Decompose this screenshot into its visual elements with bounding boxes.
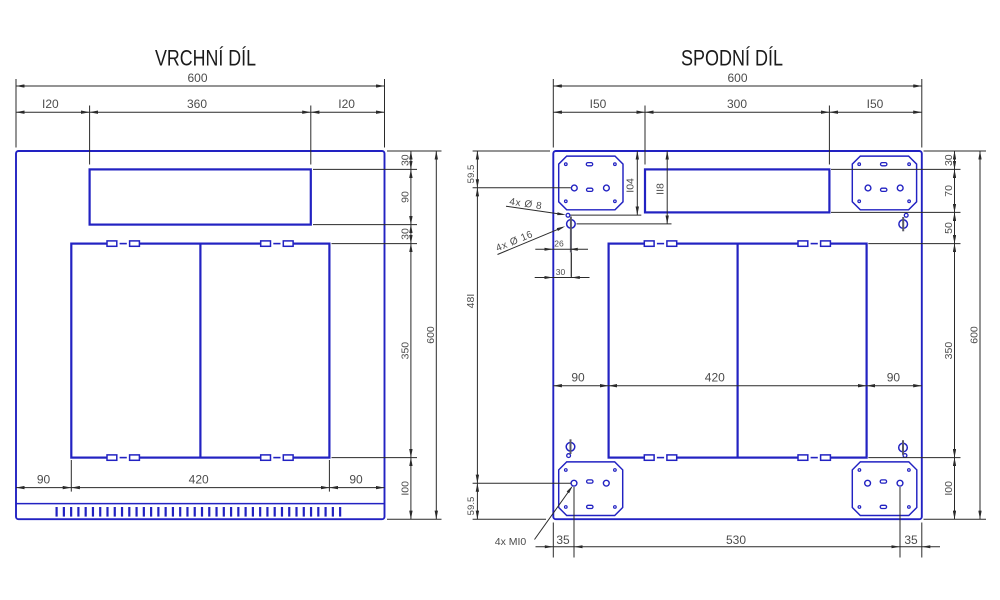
svg-text:350: 350 [943, 342, 955, 360]
svg-text:600: 600 [727, 71, 747, 85]
svg-text:I50: I50 [867, 97, 884, 111]
svg-text:30: 30 [943, 154, 955, 166]
svg-text:90: 90 [399, 191, 411, 203]
svg-text:30: 30 [399, 154, 411, 166]
svg-text:300: 300 [727, 97, 747, 111]
svg-text:70: 70 [943, 185, 955, 197]
svg-text:50: 50 [943, 222, 955, 234]
svg-text:350: 350 [399, 342, 411, 360]
svg-text:420: 420 [705, 371, 725, 385]
svg-text:48I: 48I [465, 294, 477, 309]
svg-text:I00: I00 [399, 481, 411, 496]
svg-text:I20: I20 [338, 97, 355, 111]
svg-text:90: 90 [37, 473, 51, 487]
svg-text:30: 30 [556, 267, 566, 277]
svg-text:I00: I00 [943, 481, 955, 496]
svg-text:I04: I04 [624, 178, 636, 193]
svg-text:SPODNÍ DÍL: SPODNÍ DÍL [681, 45, 783, 70]
svg-text:90: 90 [887, 371, 901, 385]
svg-text:35: 35 [904, 533, 918, 547]
svg-text:VRCHNÍ DÍL: VRCHNÍ DÍL [155, 45, 256, 70]
svg-text:35: 35 [556, 533, 570, 547]
svg-text:600: 600 [187, 71, 207, 85]
svg-text:59.5: 59.5 [466, 497, 477, 516]
svg-text:600: 600 [969, 326, 981, 344]
svg-text:90: 90 [571, 371, 585, 385]
svg-text:360: 360 [187, 97, 207, 111]
svg-text:I20: I20 [42, 97, 59, 111]
svg-text:90: 90 [349, 473, 363, 487]
svg-text:4x MI0: 4x MI0 [495, 536, 527, 548]
svg-text:530: 530 [726, 533, 746, 547]
svg-text:26: 26 [554, 239, 564, 249]
svg-text:II8: II8 [655, 183, 667, 195]
svg-text:I50: I50 [590, 97, 607, 111]
svg-text:59.5: 59.5 [466, 165, 477, 184]
svg-text:420: 420 [189, 473, 209, 487]
svg-text:30: 30 [399, 228, 411, 240]
svg-text:600: 600 [425, 326, 437, 344]
